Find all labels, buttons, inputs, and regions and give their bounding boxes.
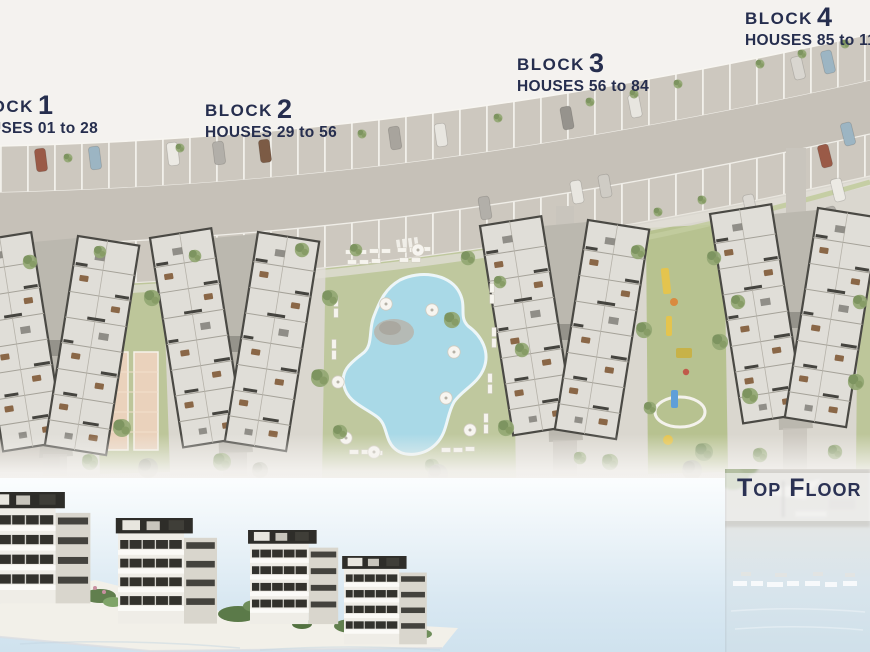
block-3-label: BLOCK3 HOUSES 56 to 84 [517, 48, 649, 96]
block-1-label: BLOCK1 HOUSES 01 to 28 [0, 90, 98, 138]
block-4-houses: HOUSES 85 to 11 [745, 32, 870, 49]
top-floor-panel: Top Floor [725, 469, 870, 652]
brochure-page: BLOCK1 HOUSES 01 to 28 BLOCK2 HOUSES 29 … [0, 0, 870, 652]
block-3-title: BLOCK3 [517, 48, 649, 78]
block-4-title: BLOCK4 [745, 2, 870, 32]
block-1-title: BLOCK1 [0, 90, 98, 120]
block-2-houses: HOUSES 29 to 56 [205, 124, 337, 141]
site-plan-map [0, 0, 870, 480]
block-1-houses: HOUSES 01 to 28 [0, 120, 98, 137]
top-floor-title: Top Floor [737, 474, 862, 503]
block-2-title: BLOCK2 [205, 94, 337, 124]
block-4-label: BLOCK4 HOUSES 85 to 11 [745, 2, 870, 50]
block-3-houses: HOUSES 56 to 84 [517, 78, 649, 95]
block-2-label: BLOCK2 HOUSES 29 to 56 [205, 94, 337, 142]
aerial-render [0, 478, 470, 652]
